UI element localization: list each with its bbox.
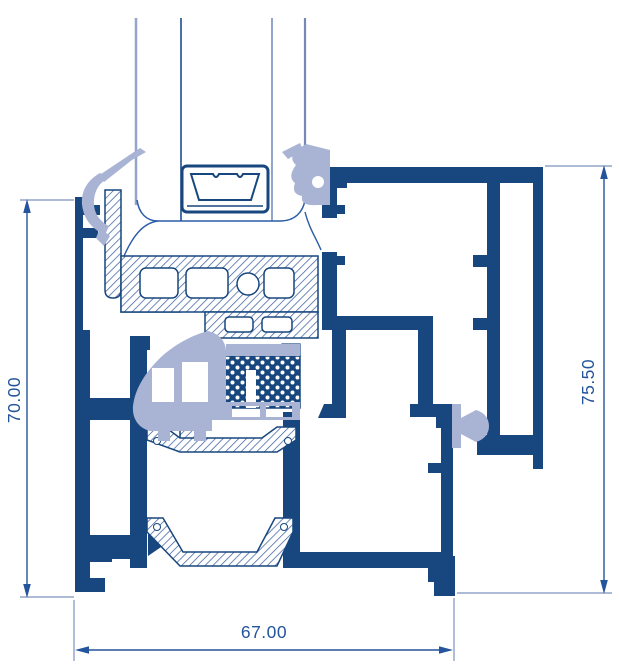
sash-glazing-bead	[105, 190, 121, 298]
arrow-right-icon	[439, 646, 453, 654]
frame-gasket-nub	[337, 178, 347, 188]
arrow-up-icon	[600, 165, 608, 179]
frame-head-web-tab-lower	[473, 318, 487, 330]
frame-right-lower-wall	[441, 408, 453, 568]
frame-right-foot	[434, 556, 455, 596]
frame-head-outer-wall	[533, 183, 543, 443]
thermal-break-top-port-right	[285, 438, 292, 445]
thermal-break-bottom-port-right	[281, 524, 288, 531]
dimension-label-bottom: 67.00	[241, 622, 287, 642]
frame-head-web	[487, 183, 500, 443]
dimension-label-right: 75.50	[578, 359, 598, 405]
frame-left-foot-ledge	[90, 550, 112, 562]
sash-rail-hole-1	[140, 268, 178, 298]
sash-step-hole-1	[225, 317, 253, 332]
arrow-up-icon	[23, 199, 31, 213]
setting-block-left-curve	[124, 221, 158, 256]
frame-head-bottom-bar	[477, 435, 543, 455]
dimension-label-left: 70.00	[4, 377, 24, 423]
frame-u-left-wall	[332, 330, 346, 404]
setting-block-right-curve	[305, 212, 321, 250]
foam-block	[213, 356, 300, 408]
dimension-left: 70.00	[4, 199, 74, 598]
thermal-break-bottom	[147, 518, 293, 566]
frame-bottom-bar	[298, 552, 445, 568]
dimension-bottom: 67.00	[74, 598, 454, 661]
sash-rail-hole-2	[186, 268, 228, 298]
arrow-down-icon	[23, 584, 31, 598]
frame-head-left-nub-upper	[337, 205, 345, 214]
frame-shelf	[322, 316, 423, 330]
glass-unit	[124, 18, 321, 256]
frame-head-left-wall-lower	[322, 252, 337, 316]
sash-rail-hole-3	[264, 268, 294, 298]
thermal-breaks	[147, 427, 296, 566]
frame-u-left-foot	[318, 404, 346, 418]
frame-right-foot-notch	[428, 566, 434, 582]
frame-gasket-hook	[130, 336, 150, 350]
sash-rail-hole-round	[237, 273, 259, 295]
frame-head-top-bar	[322, 167, 543, 183]
frame-head-left-nub-lower	[337, 256, 345, 265]
frame-left-clip-bottom	[83, 228, 98, 238]
glazing-spacer	[182, 166, 268, 212]
glazing-gasket-right	[282, 143, 330, 205]
frame-u-right-wall	[418, 316, 433, 404]
window-section-drawing: 70.00 75.50 67.00	[0, 0, 619, 666]
arrow-down-icon	[600, 580, 608, 594]
frame-left-fin	[75, 197, 83, 332]
thermal-break-bottom-port-left	[154, 524, 161, 531]
frame-head-web-tab-upper	[473, 255, 487, 267]
frame-head-bottom-fin	[533, 455, 543, 469]
frame-right-wall-tab	[428, 463, 441, 473]
sash-step-hole-2	[262, 317, 292, 332]
arrow-left-icon	[75, 646, 89, 654]
frame-left-foot	[75, 578, 105, 592]
